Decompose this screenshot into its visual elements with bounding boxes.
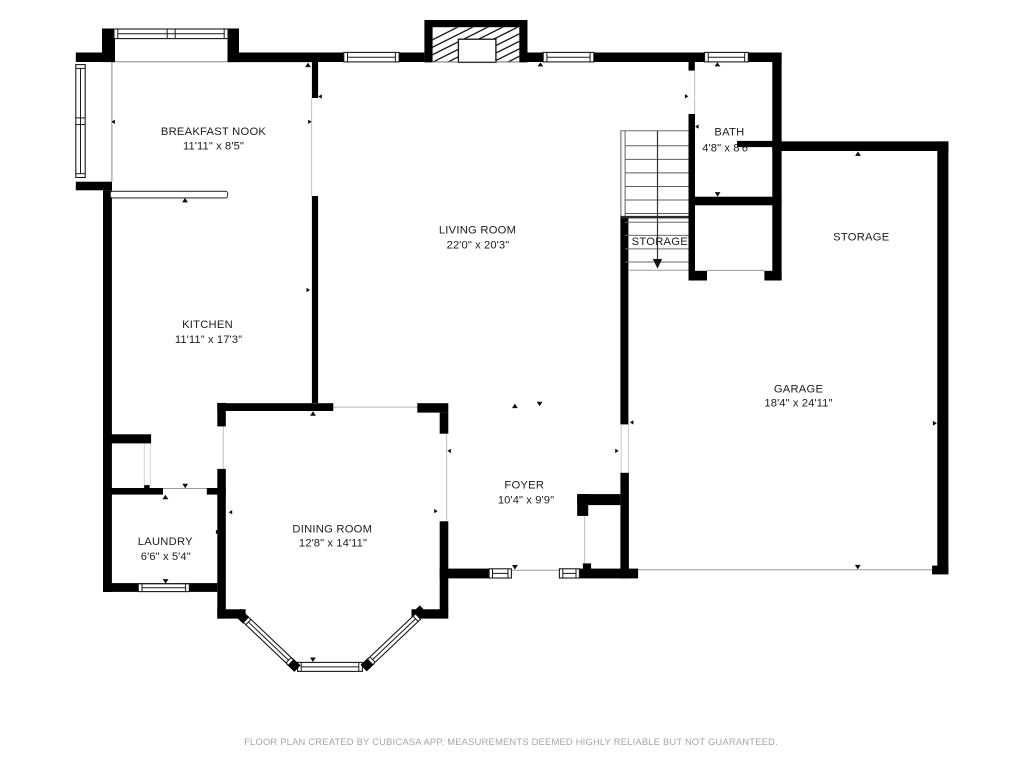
svg-text:22'0" x 20'3": 22'0" x 20'3" xyxy=(447,240,510,252)
svg-text:FLOOR PLAN CREATED BY CUBICASA: FLOOR PLAN CREATED BY CUBICASA APP. MEAS… xyxy=(244,736,778,747)
svg-text:FOYER: FOYER xyxy=(504,480,544,492)
svg-text:STORAGE: STORAGE xyxy=(833,232,889,244)
svg-text:BATH: BATH xyxy=(714,126,744,138)
svg-text:6'6" x 5'4": 6'6" x 5'4" xyxy=(141,551,191,563)
svg-text:GARAGE: GARAGE xyxy=(774,383,823,395)
svg-text:LAUNDRY: LAUNDRY xyxy=(138,536,193,548)
svg-text:DINING ROOM: DINING ROOM xyxy=(292,523,372,535)
svg-text:11'11" x 8'5": 11'11" x 8'5" xyxy=(183,140,244,152)
svg-text:18'4" x 24'11": 18'4" x 24'11" xyxy=(764,398,832,410)
svg-text:BREAKFAST NOOK: BREAKFAST NOOK xyxy=(161,126,267,138)
svg-text:10'4" x 9'9": 10'4" x 9'9" xyxy=(498,494,554,506)
svg-text:STORAGE: STORAGE xyxy=(632,236,688,248)
svg-text:KITCHEN: KITCHEN xyxy=(182,319,233,331)
svg-text:12'8" x 14'11": 12'8" x 14'11" xyxy=(299,537,367,549)
svg-text:LIVING ROOM: LIVING ROOM xyxy=(439,224,516,236)
svg-text:11'11" x 17'3": 11'11" x 17'3" xyxy=(175,334,242,346)
